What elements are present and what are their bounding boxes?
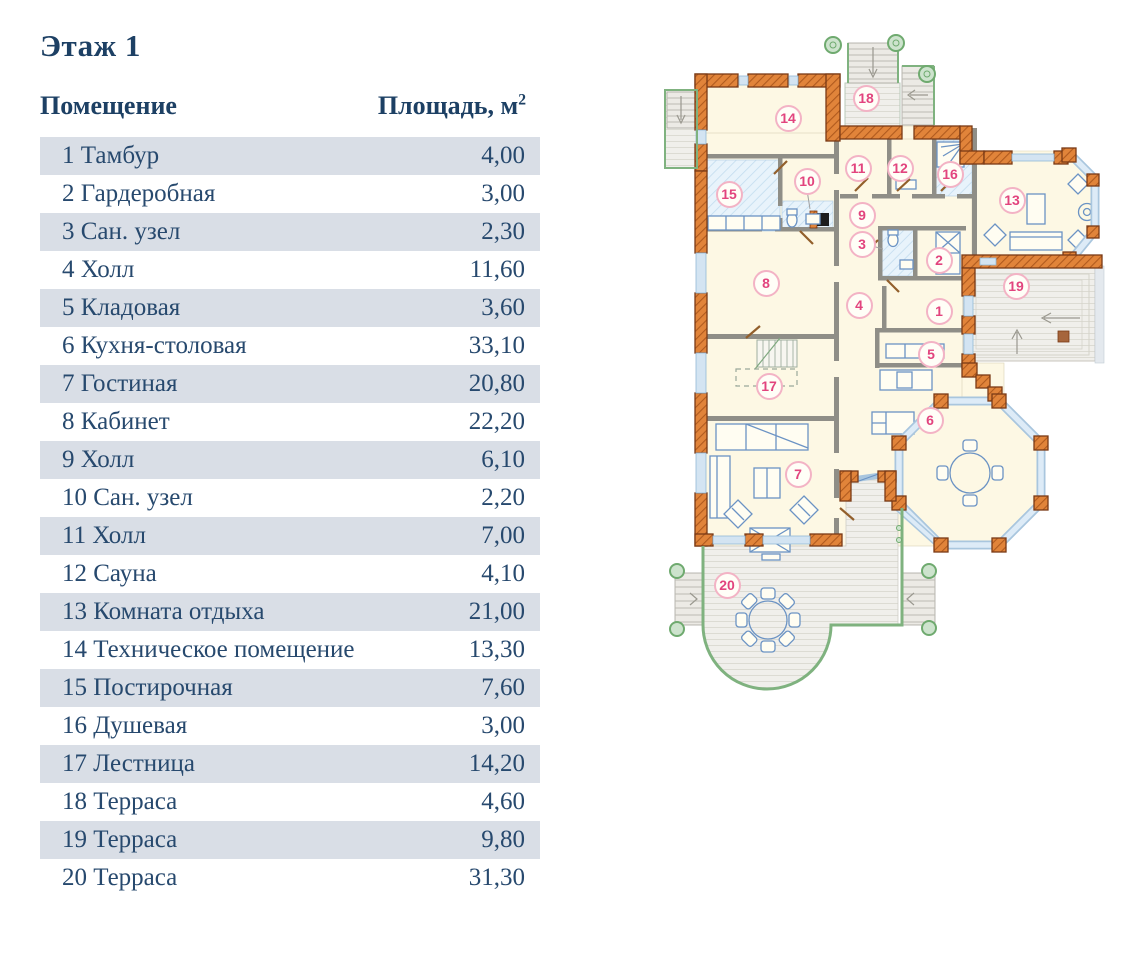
room-name: 17 Лестница — [40, 745, 195, 783]
room-area: 3,00 — [481, 175, 540, 213]
room-number-badge: 17 — [756, 373, 783, 400]
room-area: 4,60 — [481, 783, 540, 821]
room-area: 22,20 — [469, 403, 540, 441]
table-row: 1 Тамбур4,00 — [40, 137, 540, 175]
room-area: 2,20 — [481, 479, 540, 517]
room-area: 11,60 — [470, 251, 540, 289]
room-number-badge: 16 — [937, 161, 964, 188]
room-area: 20,80 — [469, 365, 540, 403]
room-area: 2,30 — [481, 213, 540, 251]
table-row: 17 Лестница14,20 — [40, 745, 540, 783]
room-name: 19 Терраса — [40, 821, 177, 859]
room-area: 6,10 — [481, 441, 540, 479]
room-number-badge: 12 — [887, 155, 914, 182]
room-area: 9,80 — [481, 821, 540, 859]
room-number-badge: 2 — [926, 247, 953, 274]
floor-title: Этаж 1 — [40, 28, 540, 64]
room-number-badge: 5 — [918, 341, 945, 368]
room-area: 33,10 — [469, 327, 540, 365]
room-number-badge: 20 — [714, 572, 741, 599]
room-name: 10 Сан. узел — [40, 479, 193, 517]
room-area: 13,30 — [469, 631, 540, 669]
table-row: 20 Терраса31,30 — [40, 859, 540, 897]
room-area: 21,00 — [469, 593, 540, 631]
table-row: 7 Гостиная20,80 — [40, 365, 540, 403]
room-number-badge: 14 — [775, 105, 802, 132]
room-name: 16 Душевая — [40, 707, 187, 745]
room-name: 14 Техническое помещение — [40, 631, 355, 669]
table-row: 2 Гардеробная3,00 — [40, 175, 540, 213]
room-name: 5 Кладовая — [40, 289, 180, 327]
room-name: 20 Терраса — [40, 859, 177, 897]
table-row: 3 Сан. узел2,30 — [40, 213, 540, 251]
room-name: 3 Сан. узел — [40, 213, 180, 251]
column-room: Помещение — [40, 91, 177, 121]
room-name: 12 Сауна — [40, 555, 157, 593]
room-name: 8 Кабинет — [40, 403, 170, 441]
table-row: 14 Техническое помещение13,30 — [40, 631, 540, 669]
room-area: 7,00 — [481, 517, 540, 555]
room-number-badge: 4 — [846, 292, 873, 319]
room-area: 7,60 — [481, 669, 540, 707]
room-number-badge: 9 — [849, 202, 876, 229]
area-table-panel: Этаж 1 Помещение Площадь, м2 1 Тамбур4,0… — [40, 28, 540, 897]
table-row: 6 Кухня-столовая33,10 — [40, 327, 540, 365]
room-area: 4,00 — [481, 137, 540, 175]
room-number-badge: 6 — [917, 407, 944, 434]
table-row: 9 Холл6,10 — [40, 441, 540, 479]
floor-plan-page: Этаж 1 Помещение Площадь, м2 1 Тамбур4,0… — [0, 0, 1134, 960]
room-area: 4,10 — [481, 555, 540, 593]
table-row: 11 Холл7,00 — [40, 517, 540, 555]
table-header: Помещение Площадь, м2 — [40, 91, 540, 137]
room-name: 2 Гардеробная — [40, 175, 215, 213]
room-name: 11 Холл — [40, 517, 146, 555]
table-row: 18 Терраса4,60 — [40, 783, 540, 821]
table-row: 4 Холл11,60 — [40, 251, 540, 289]
room-name: 13 Комната отдыха — [40, 593, 264, 631]
room-name: 1 Тамбур — [40, 137, 159, 175]
room-name: 4 Холл — [40, 251, 134, 289]
room-table: 1 Тамбур4,002 Гардеробная3,003 Сан. узел… — [40, 137, 540, 897]
table-row: 8 Кабинет22,20 — [40, 403, 540, 441]
room-number-badge: 13 — [999, 187, 1026, 214]
room-area: 31,30 — [469, 859, 540, 897]
table-row: 19 Терраса9,80 — [40, 821, 540, 859]
room-name: 7 Гостиная — [40, 365, 178, 403]
room-name: 9 Холл — [40, 441, 134, 479]
floor-plan: 1234567891011121314151617181920 — [650, 28, 1120, 718]
room-number-badge: 7 — [785, 461, 812, 488]
room-number-badge: 8 — [753, 270, 780, 297]
room-area: 3,00 — [481, 707, 540, 745]
table-row: 16 Душевая3,00 — [40, 707, 540, 745]
table-row: 15 Постирочная7,60 — [40, 669, 540, 707]
floor-plan-drawing — [650, 28, 1120, 718]
room-area: 14,20 — [469, 745, 540, 783]
room-number-badge: 3 — [849, 231, 876, 258]
room-name: 18 Терраса — [40, 783, 177, 821]
room-number-badge: 19 — [1003, 273, 1030, 300]
room-number-badge: 1 — [926, 298, 953, 325]
table-row: 10 Сан. узел2,20 — [40, 479, 540, 517]
table-row: 5 Кладовая3,60 — [40, 289, 540, 327]
table-row: 13 Комната отдыха21,00 — [40, 593, 540, 631]
room-number-badge: 15 — [716, 181, 743, 208]
room-number-badge: 10 — [794, 168, 821, 195]
column-area: Площадь, м2 — [378, 91, 526, 121]
room-name: 6 Кухня-столовая — [40, 327, 247, 365]
room-number-badge: 11 — [845, 155, 872, 182]
room-number-badge: 18 — [853, 85, 880, 112]
room-name: 15 Постирочная — [40, 669, 233, 707]
room-area: 3,60 — [481, 289, 540, 327]
table-row: 12 Сауна4,10 — [40, 555, 540, 593]
